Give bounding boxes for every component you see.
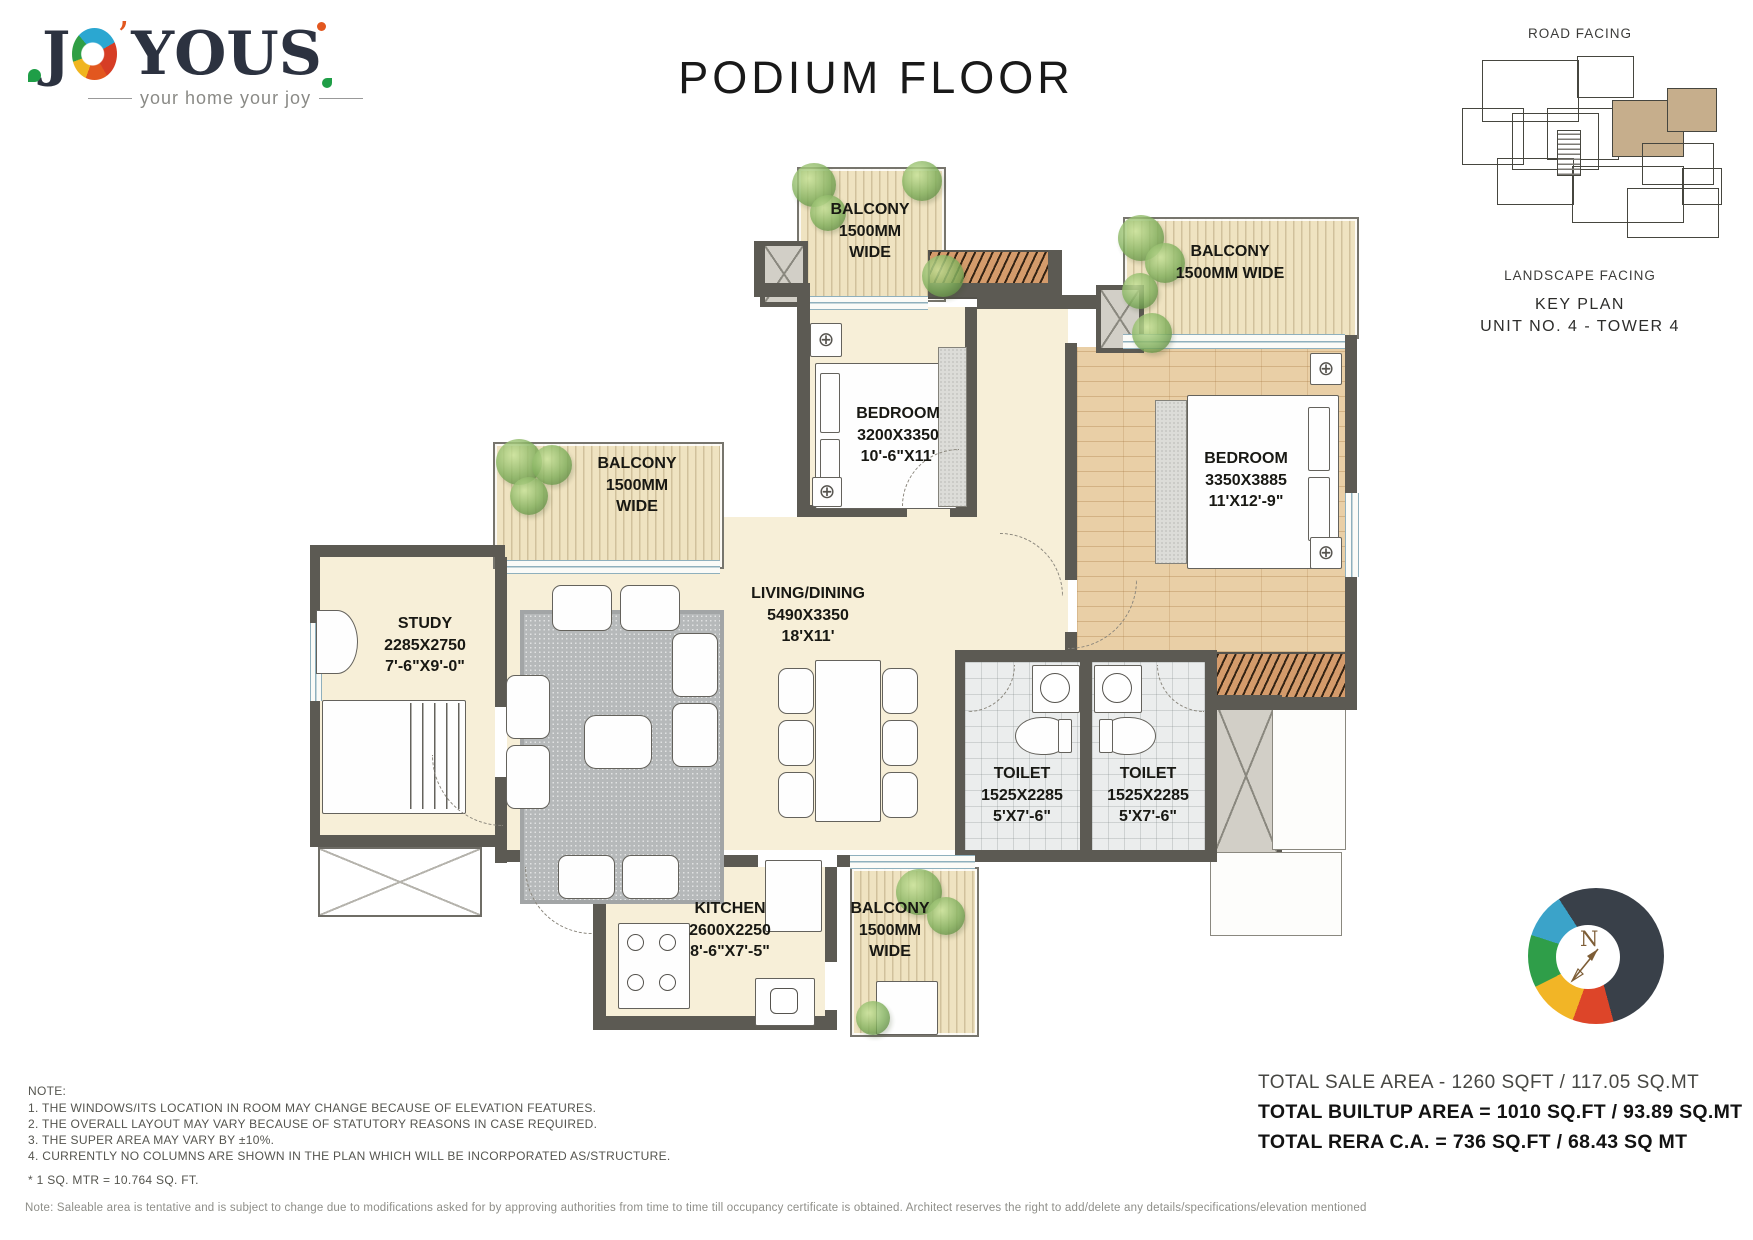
wall: [1345, 335, 1357, 495]
wall: [955, 662, 965, 850]
total-builtup-area: TOTAL BUILTUP AREA = 1010 SQ.FT / 93.89 …: [1258, 1101, 1742, 1124]
toilet2-label: TOILET1525X22855'X7'-6": [1107, 763, 1189, 828]
keyplan-drawing: [1442, 48, 1728, 260]
coffee-table: [584, 715, 652, 769]
window: [1345, 493, 1359, 577]
wc-tank: [1099, 719, 1113, 753]
wall: [310, 545, 505, 557]
kitchen-sink: [755, 978, 815, 1026]
tagline-rule-right: [319, 98, 363, 99]
kitchen-label: KITCHEN2600X22508'-6"X7'-5": [689, 898, 771, 963]
nightstand-power-icon: ⊕: [810, 323, 842, 357]
wall: [1345, 575, 1357, 710]
sofa-seat: [672, 633, 718, 697]
tree-icon: [922, 255, 964, 297]
total-sale-area: TOTAL SALE AREA - 1260 SQFT / 117.05 SQ.…: [1258, 1072, 1742, 1094]
dining-table: [815, 660, 881, 822]
tree-icon: [856, 1001, 890, 1035]
wall: [955, 650, 1217, 662]
pillow: [1308, 477, 1330, 541]
area-totals: TOTAL SALE AREA - 1260 SQFT / 117.05 SQ.…: [1258, 1072, 1742, 1154]
bedroom1-label: BEDROOM3200X335010'-6"X11': [856, 403, 940, 468]
logo-green-dot-icon: [28, 69, 41, 82]
total-rera-area: TOTAL RERA C.A. = 736 SQ.FT / 68.43 SQ M…: [1258, 1131, 1742, 1154]
note-item: 4. CURRENTLY NO COLUMNS ARE SHOWN IN THE…: [28, 1148, 671, 1165]
keyplan-unit-label: UNIT NO. 4 - TOWER 4: [1480, 318, 1680, 336]
balcony-left-label: BALCONY1500MMWIDE: [597, 453, 676, 518]
lobby-area: [1210, 852, 1342, 936]
dining-chair: [882, 720, 918, 766]
compass-icon: N: [1528, 888, 1664, 1024]
wall: [754, 283, 810, 297]
dining-chair: [778, 668, 814, 714]
tagline-rule-left: [88, 98, 132, 99]
compass-dial: N: [1556, 925, 1620, 989]
washbasin: [1094, 665, 1142, 713]
wall: [955, 850, 1217, 862]
window: [810, 296, 928, 310]
logo-tagline: your home your joy: [88, 88, 322, 109]
toilet1-label: TOILET1525X22855'X7'-6": [981, 763, 1063, 828]
logo-letter-u: U: [226, 24, 278, 84]
keyplan-road-facing-label: ROAD FACING: [1528, 26, 1632, 41]
wall: [1205, 650, 1217, 850]
living-dining-label: LIVING/DINING5490X335018'X11': [751, 583, 865, 648]
sofa-seat: [672, 703, 718, 767]
wall: [797, 295, 810, 517]
dining-chair: [778, 720, 814, 766]
keyplan-highlighted-unit: [1667, 88, 1717, 132]
keyplan-stairs-icon: [1557, 130, 1581, 176]
floor-plan: ⊕ ⊕ ⊕ ⊕: [310, 155, 1360, 1045]
bedroom2-label: BEDROOM3350X388511'X12'-9": [1204, 448, 1288, 513]
balcony-top-label: BALCONY1500MMWIDE: [830, 199, 909, 264]
balcony-bottom-label: BALCONY1500MMWIDE: [850, 898, 929, 963]
sofa-seat: [620, 585, 680, 631]
logo-swirl-o-icon: [72, 28, 117, 80]
conversion-note: * 1 SQ. MTR = 10.764 SQ. FT.: [28, 1172, 199, 1189]
corridor-floor: [965, 307, 1068, 650]
tree-icon: [902, 161, 942, 201]
keyplan-title: KEY PLAN: [1535, 296, 1625, 314]
refrigerator: [765, 860, 822, 932]
wall: [1215, 697, 1357, 710]
wall: [1080, 662, 1092, 850]
sofa-seat: [506, 745, 550, 809]
page-title: PODIUM FLOOR: [678, 52, 1074, 104]
nightstand-power-icon: ⊕: [812, 477, 842, 507]
window: [850, 855, 975, 869]
ledge-box: [318, 847, 482, 917]
nightstand-power-icon: ⊕: [1310, 537, 1342, 569]
pillow: [820, 373, 840, 433]
tree-icon: [1122, 273, 1158, 309]
note-item: 2. THE OVERALL LAYOUT MAY VARY BECAUSE O…: [28, 1116, 597, 1133]
pillow: [1308, 407, 1330, 471]
stove: [618, 923, 690, 1009]
sofa-seat: [622, 855, 679, 899]
dining-chair: [882, 668, 918, 714]
note-item: 1. THE WINDOWS/ITS LOCATION IN ROOM MAY …: [28, 1100, 596, 1117]
wall: [1065, 343, 1077, 580]
study-label: STUDY2285X27507'-6"X9'-0": [384, 613, 466, 678]
logo-letter-s: S: [279, 24, 322, 84]
tree-icon: [510, 477, 548, 515]
logo-orange-dot-icon: [317, 22, 326, 31]
window: [507, 560, 720, 574]
notes-heading: NOTE:: [28, 1083, 66, 1100]
logo-letter-y: Y: [131, 24, 174, 84]
logo-green-comma-icon: [322, 78, 332, 88]
keyplan-landscape-facing-label: LANDSCAPE FACING: [1504, 268, 1656, 283]
dining-chair: [778, 772, 814, 818]
sofa-seat: [506, 675, 550, 739]
wardrobe-hatch: [1215, 652, 1349, 701]
note-item: 3. THE SUPER AREA MAY VARY BY ±10%.: [28, 1132, 274, 1149]
door-arc: [525, 867, 592, 934]
wardrobe: [1155, 400, 1187, 564]
disclaimer-text: Note: Saleable area is tentative and is …: [25, 1202, 1367, 1214]
dining-chair: [882, 772, 918, 818]
tree-icon: [927, 897, 965, 935]
wall: [310, 835, 500, 847]
wall: [310, 557, 320, 847]
lobby-area: [1272, 700, 1346, 850]
wc-tank: [1058, 719, 1072, 753]
logo-letter-j: J: [42, 24, 70, 84]
wall: [825, 867, 837, 962]
balcony-right-label: BALCONY1500MM WIDE: [1176, 241, 1284, 284]
tree-icon: [1132, 313, 1172, 353]
armchair: [316, 610, 358, 674]
compass-needle-icon: [1564, 937, 1610, 987]
sofa-seat: [552, 585, 612, 631]
wall: [977, 295, 1100, 309]
joyous-logo: J ’ Y O U S your home your joy: [42, 24, 322, 109]
logo-letter-o: O: [174, 24, 226, 84]
wall: [754, 241, 762, 297]
wall: [825, 1010, 837, 1030]
washbasin: [1032, 665, 1080, 713]
nightstand-power-icon: ⊕: [1310, 353, 1342, 385]
